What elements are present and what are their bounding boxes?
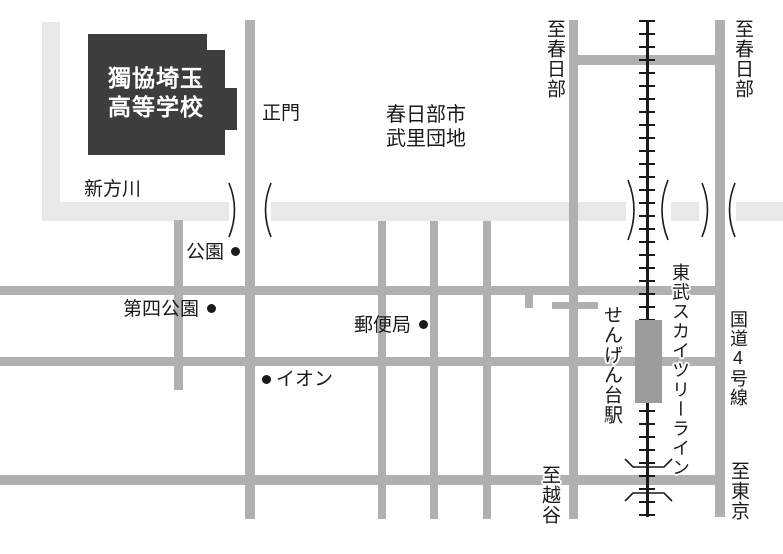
- label-station: せんげん台駅: [601, 305, 621, 425]
- bridge-bracket-icon: [628, 180, 634, 240]
- label-route4: 国道4号線: [728, 310, 748, 407]
- park-dot: [231, 247, 240, 256]
- label-to-tokyo: 至東京: [728, 461, 748, 521]
- label-to-kasukabe-west: 至春日部: [544, 19, 564, 99]
- label-aeon: イオン: [276, 369, 333, 391]
- bridge-marks: [0, 0, 783, 554]
- aeon-dot: [262, 375, 271, 384]
- bridge-bracket-icon: [702, 183, 708, 237]
- label-district-line1: 春日部市: [386, 103, 466, 127]
- bridge-bracket-icon: [266, 183, 272, 237]
- label-district-line2: 武里団地: [386, 127, 466, 151]
- label-rail-line: 東武スカイツリーライン: [670, 263, 690, 478]
- route-map: 獨協埼玉 高等学校 正門 新方川 春日部市 武里団地 公園 第四公園 郵便局 イ…: [0, 0, 783, 554]
- rail-overpass-icon: [625, 459, 672, 467]
- fourth-park-dot: [207, 304, 216, 313]
- bridge-bracket-icon: [229, 183, 235, 237]
- label-main-gate: 正門: [262, 103, 300, 125]
- label-park: 公園: [186, 242, 224, 264]
- label-to-koshigaya: 至越谷: [539, 465, 559, 525]
- bridge-bracket-icon: [730, 183, 736, 237]
- bridge-bracket-icon: [662, 180, 668, 240]
- label-fourth-park: 第四公園: [123, 299, 199, 321]
- rail-overpass-icon: [625, 493, 672, 501]
- post-office-dot: [419, 320, 428, 329]
- label-river-name: 新方川: [84, 179, 141, 201]
- label-district: 春日部市 武里団地: [386, 103, 466, 151]
- label-post-office: 郵便局: [354, 315, 411, 337]
- label-to-kasukabe-east: 至春日部: [732, 19, 752, 99]
